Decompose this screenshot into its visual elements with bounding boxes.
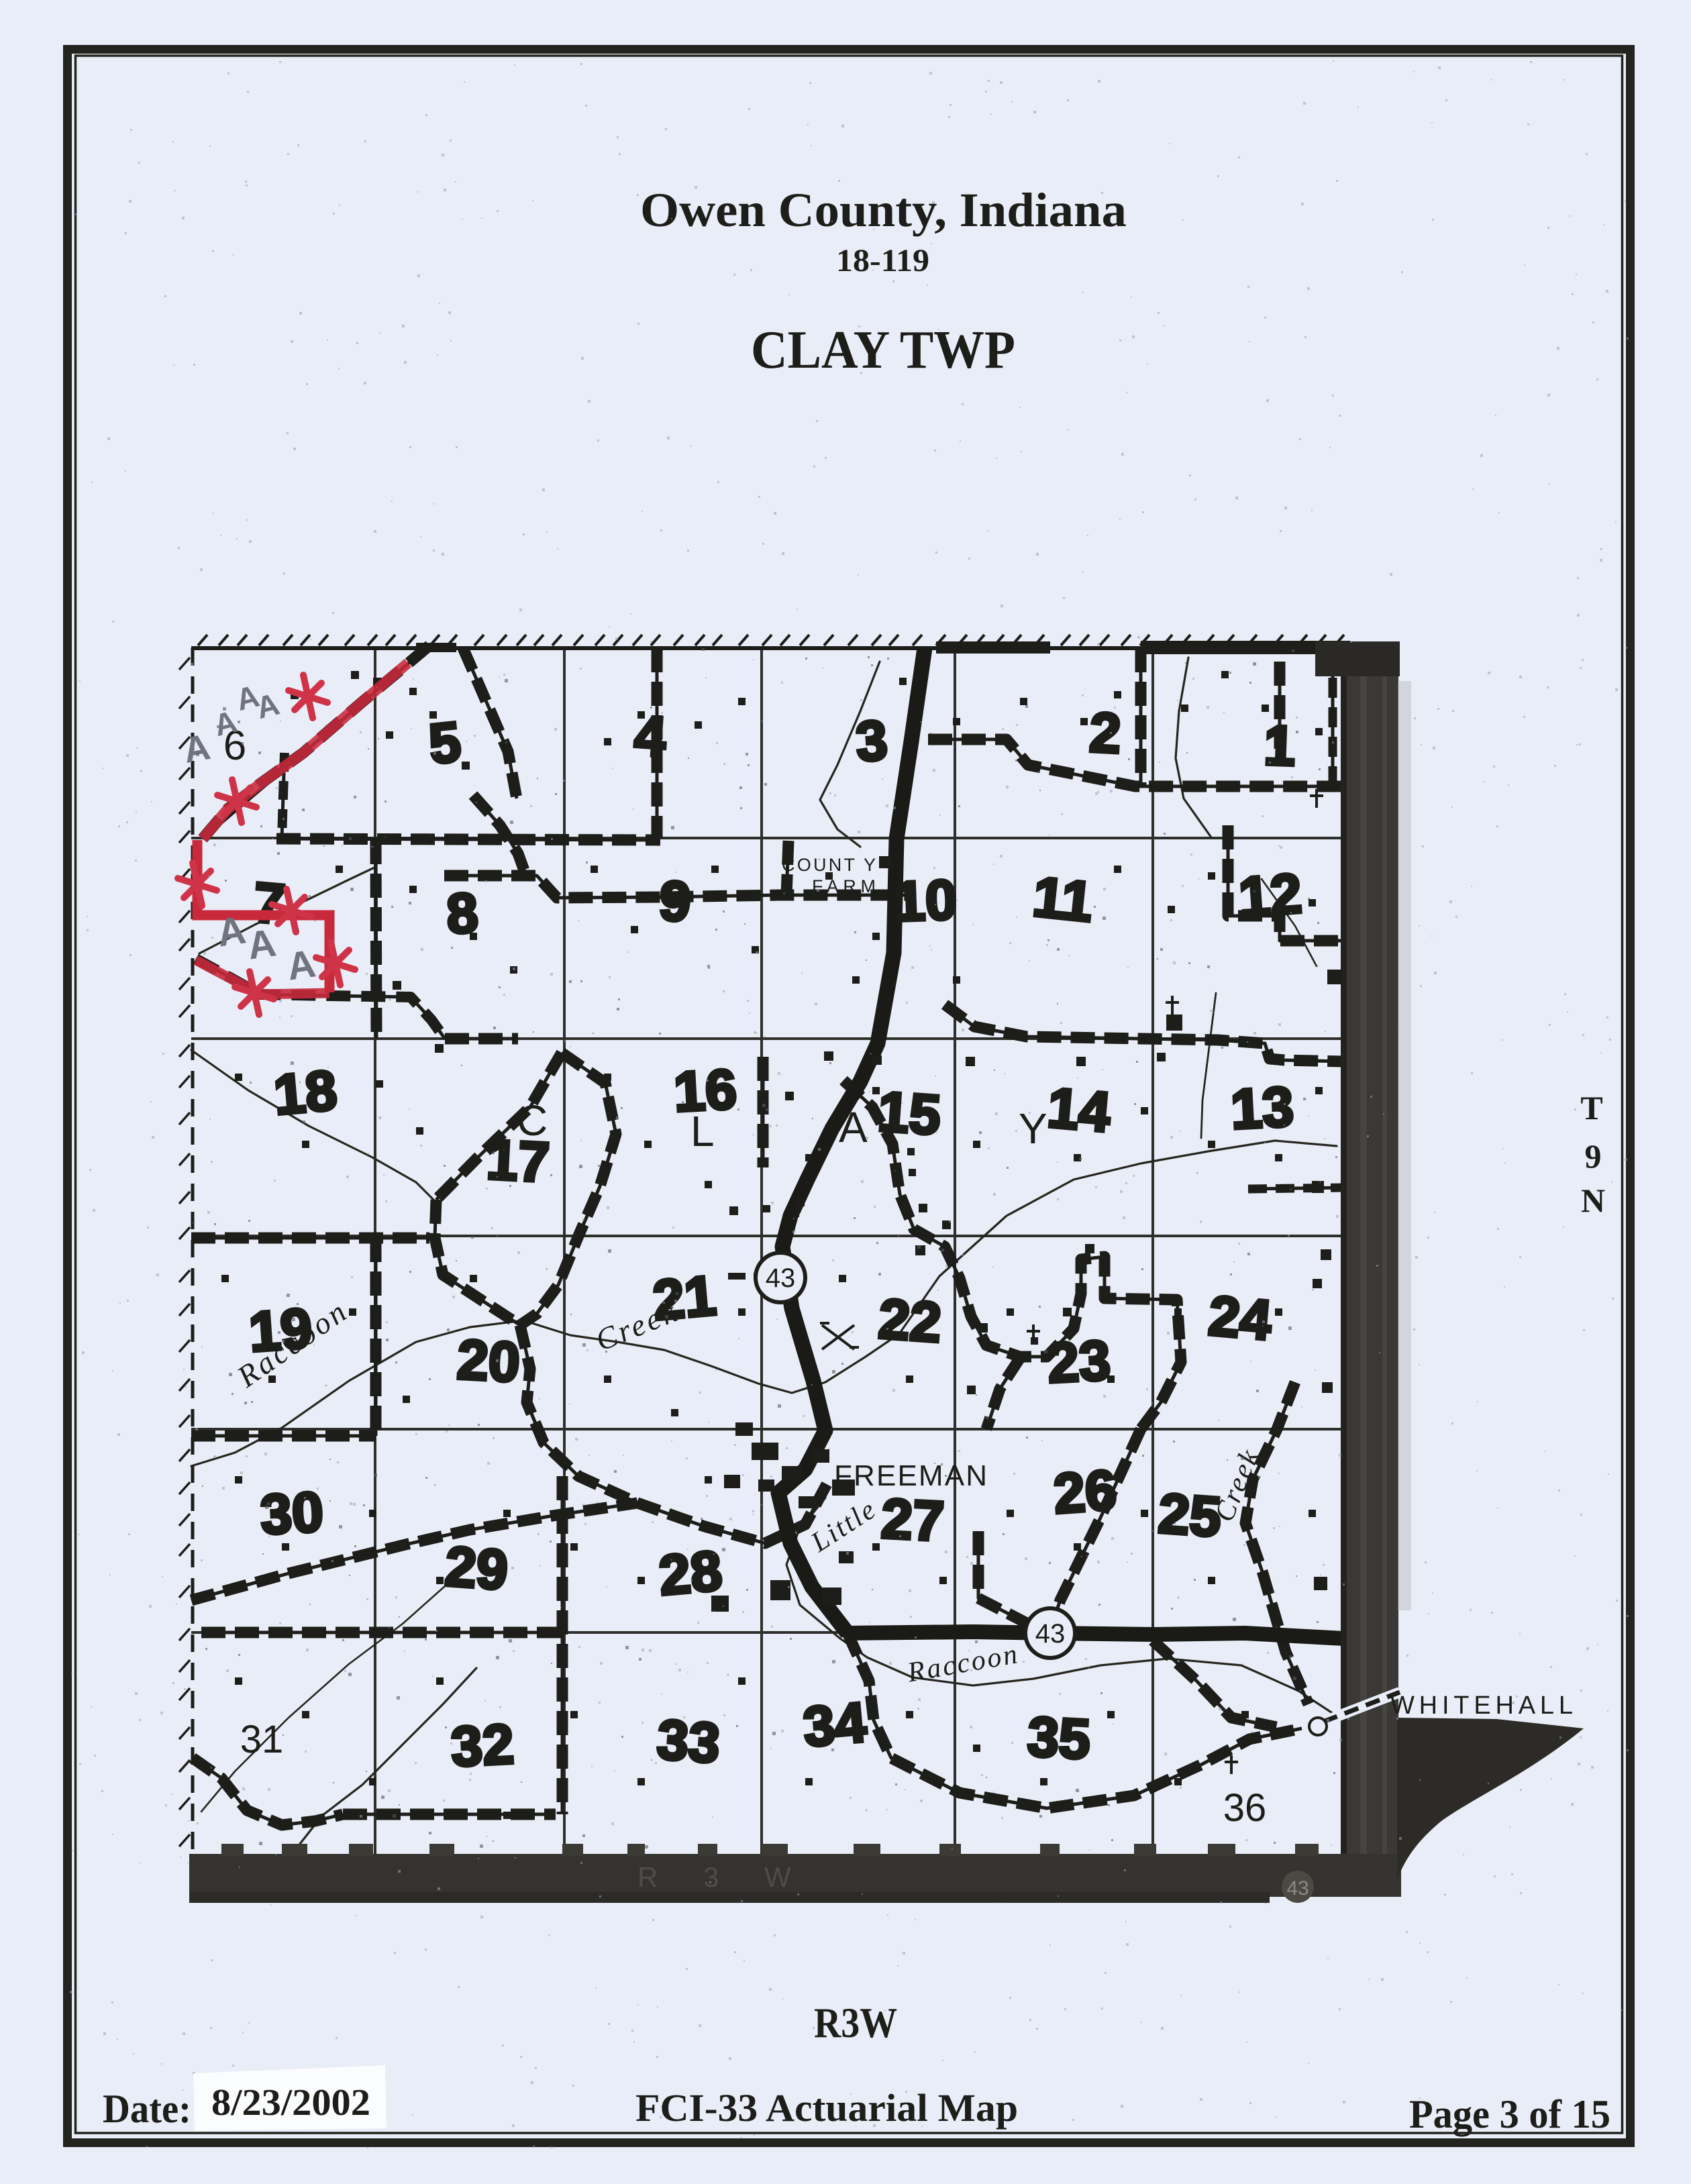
svg-text:11: 11 [1030, 865, 1096, 934]
svg-text:Owen County, Indiana: Owen County, Indiana [640, 183, 1127, 237]
svg-text:18: 18 [271, 1058, 339, 1127]
svg-text:28: 28 [656, 1539, 724, 1607]
svg-text:21: 21 [650, 1263, 718, 1332]
svg-text:33: 33 [655, 1708, 722, 1775]
svg-text:A: A [245, 921, 279, 968]
svg-text:FARM: FARM [812, 876, 876, 896]
svg-text:2: 2 [1088, 700, 1123, 765]
svg-text:FREEMAN: FREEMAN [834, 1459, 987, 1492]
svg-text:15: 15 [876, 1080, 943, 1147]
svg-text:34: 34 [801, 1690, 869, 1759]
svg-text:CLAY TWP: CLAY TWP [751, 321, 1015, 380]
svg-text:24: 24 [1206, 1284, 1274, 1352]
svg-text:Y: Y [1019, 1104, 1047, 1153]
svg-text:43: 43 [1286, 1877, 1309, 1900]
svg-text:20: 20 [456, 1328, 521, 1394]
svg-text:10: 10 [893, 868, 958, 933]
svg-text:13: 13 [1229, 1075, 1295, 1141]
svg-text:27: 27 [880, 1487, 945, 1553]
svg-text:Date:: Date: [103, 2087, 191, 2131]
svg-text:36: 36 [1223, 1786, 1267, 1830]
svg-text:Page 3 of 15: Page 3 of 15 [1409, 2092, 1610, 2136]
svg-text:43: 43 [1035, 1619, 1066, 1649]
svg-text:FCI-33 Actuarial Map: FCI-33 Actuarial Map [635, 2086, 1018, 2130]
svg-text:26: 26 [1052, 1458, 1119, 1525]
svg-text:32: 32 [450, 1712, 515, 1779]
svg-text:23: 23 [1046, 1329, 1112, 1395]
svg-text:A: A [839, 1103, 868, 1151]
svg-text:14: 14 [1045, 1076, 1113, 1144]
svg-text:12: 12 [1237, 862, 1304, 929]
svg-text:43: 43 [766, 1263, 796, 1293]
svg-text:R3W: R3W [814, 1999, 897, 2046]
svg-text:22: 22 [876, 1287, 943, 1354]
svg-text:17: 17 [485, 1128, 551, 1194]
svg-text:31: 31 [240, 1718, 284, 1761]
svg-text:25: 25 [1156, 1481, 1223, 1549]
svg-text:8: 8 [445, 881, 480, 945]
svg-text:5: 5 [426, 710, 464, 776]
svg-text:9: 9 [1585, 1137, 1602, 1175]
svg-text:18-119: 18-119 [836, 243, 929, 278]
svg-text:T: T [1580, 1089, 1602, 1127]
svg-text:16: 16 [672, 1057, 738, 1124]
svg-text:R 3 W: R 3 W [637, 1861, 810, 1893]
svg-text:19: 19 [247, 1296, 314, 1363]
svg-text:8/23/2002: 8/23/2002 [211, 2082, 370, 2124]
svg-text:3: 3 [854, 708, 889, 773]
svg-text:29: 29 [443, 1535, 510, 1602]
svg-text:N: N [1581, 1182, 1605, 1219]
svg-text:35: 35 [1026, 1705, 1092, 1771]
svg-text:A: A [215, 908, 249, 955]
svg-text:A: A [285, 941, 319, 988]
svg-text:1: 1 [1263, 713, 1296, 778]
svg-text:9: 9 [657, 868, 693, 933]
